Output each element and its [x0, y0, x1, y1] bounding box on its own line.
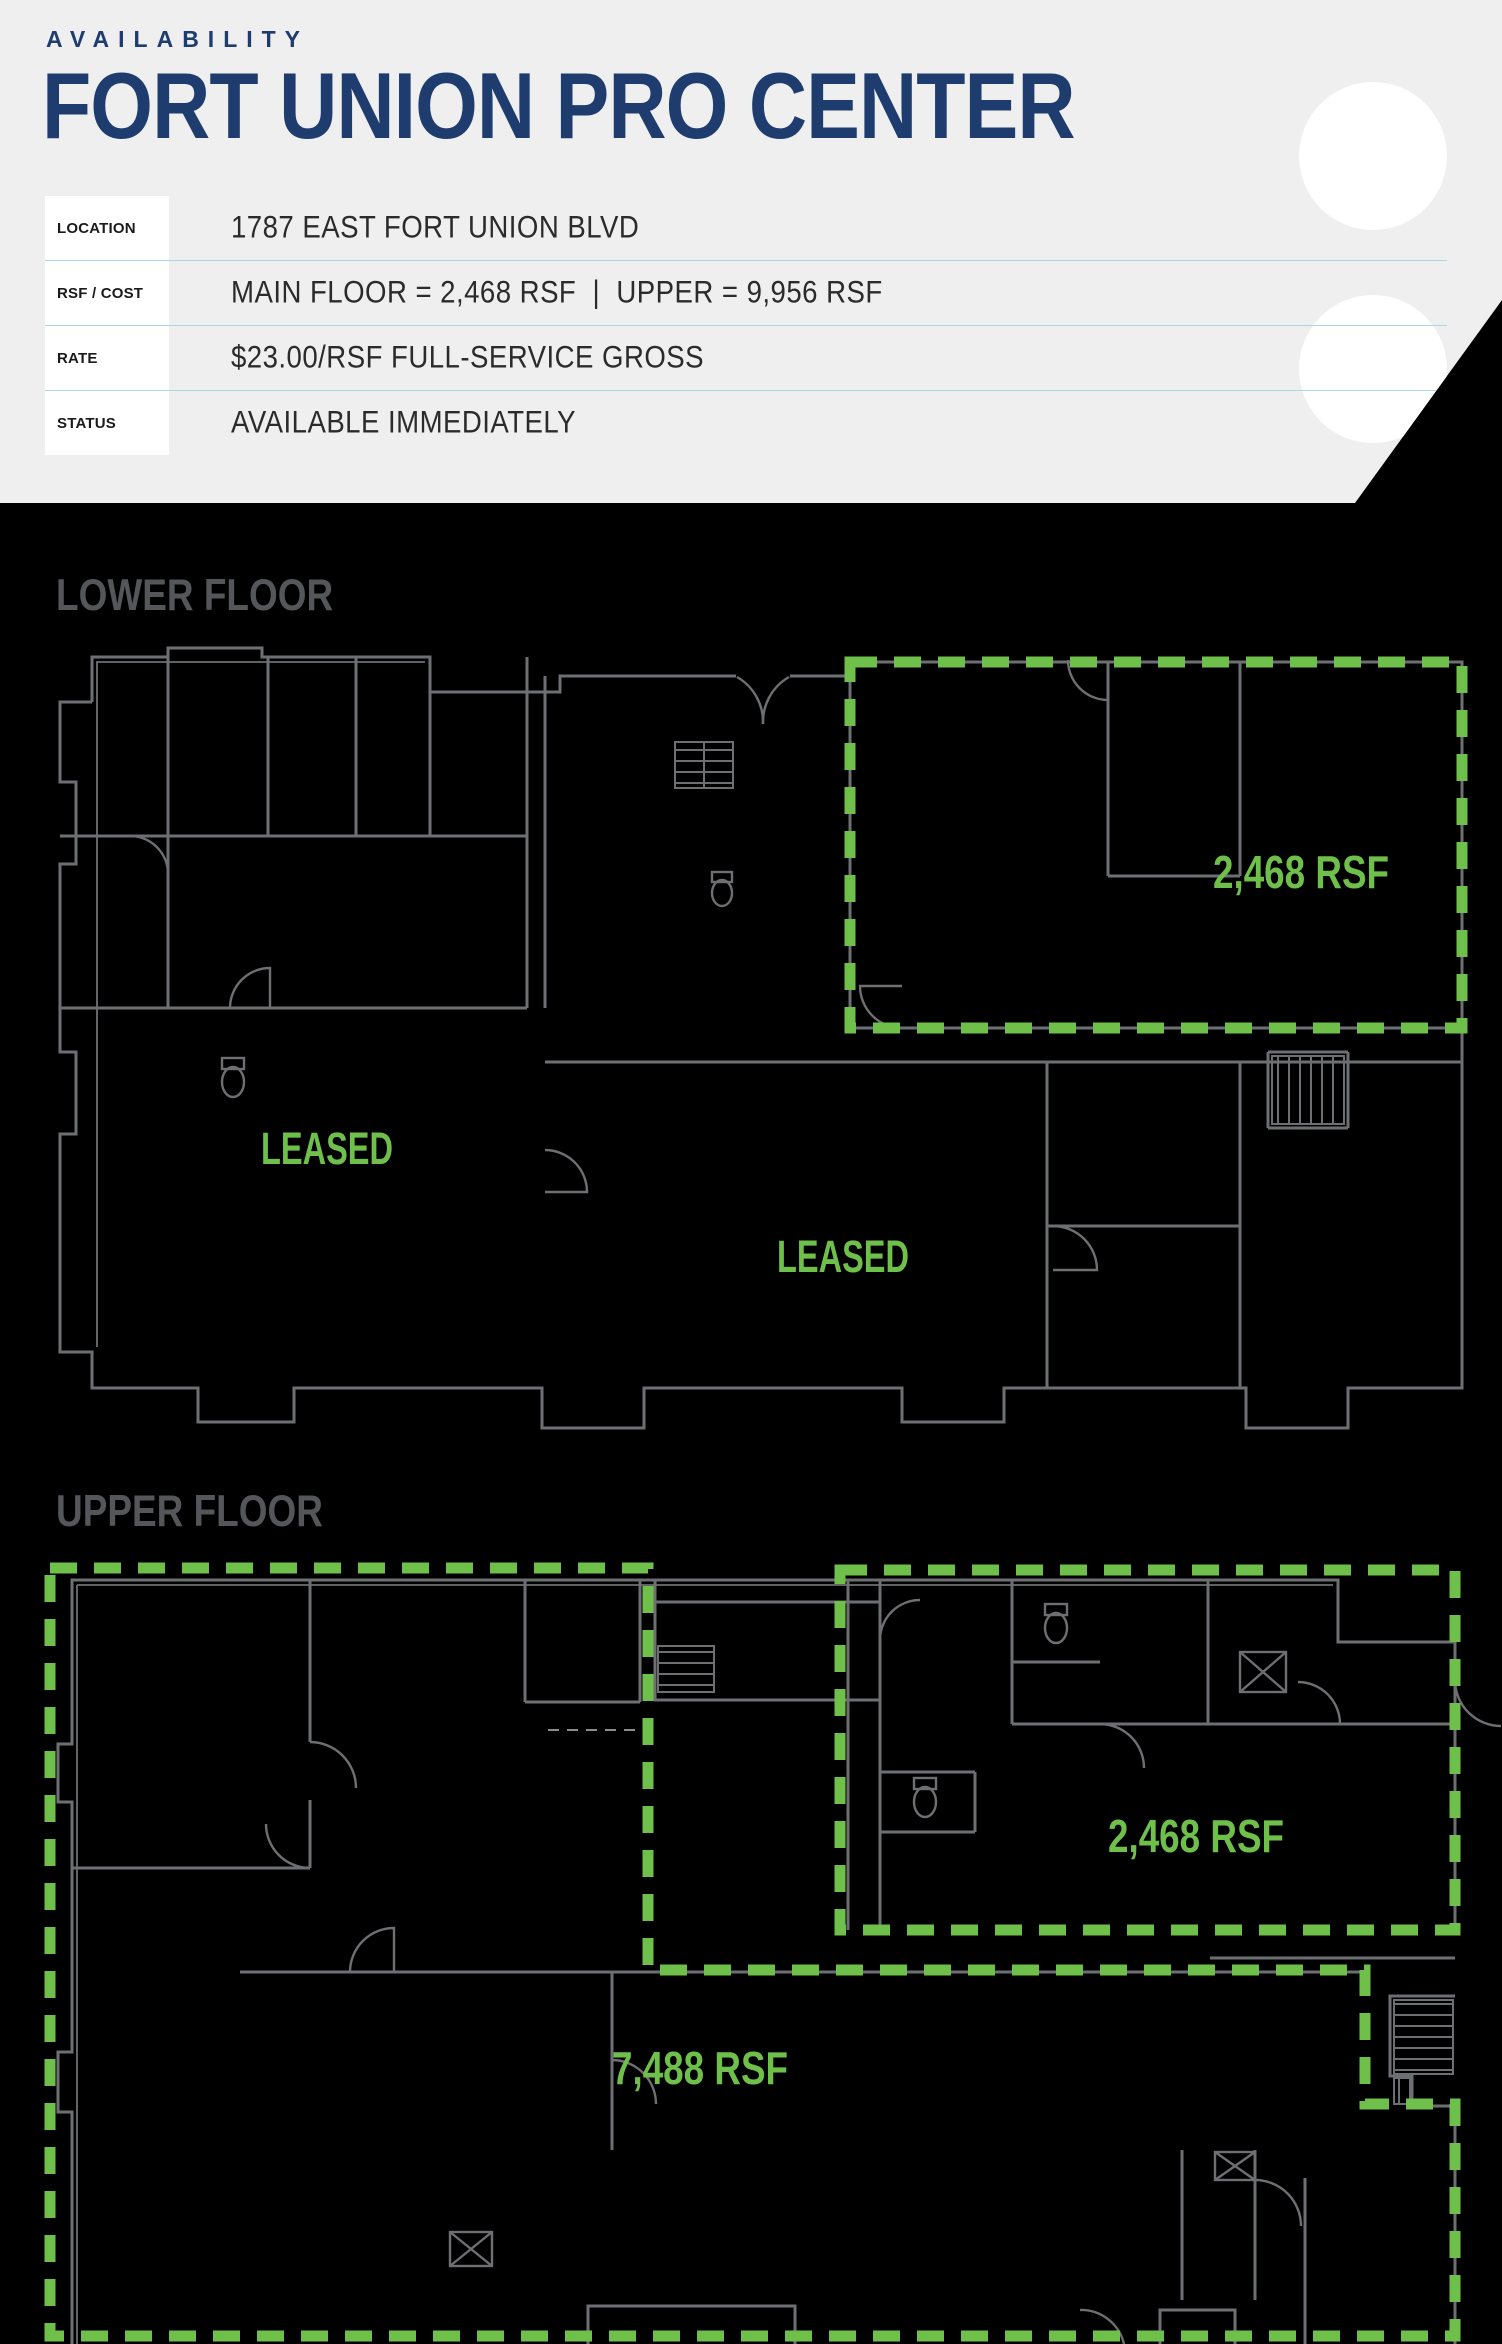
available-suite-outline-lower	[850, 662, 1462, 1028]
suite-size-label: 2,468 RSF	[1108, 1810, 1284, 1862]
elevator-icon	[1240, 1652, 1286, 1692]
upper-floor-heading: UPPER FLOOR	[56, 1486, 323, 1536]
stairs	[675, 742, 1344, 1124]
leased-label: LEASED	[777, 1231, 909, 1282]
suite-size-label: 2,468 RSF	[1213, 846, 1389, 898]
plan-labels: 2,468 RSF 7,488 RSF	[612, 1810, 1284, 2094]
table-row-rate: RATE $23.00/RSF FULL-SERVICE GROSS	[45, 325, 1447, 390]
available-suite-outline-upper-small	[840, 1570, 1455, 1930]
lower-floor-heading: LOWER FLOOR	[56, 570, 333, 620]
walls	[58, 1580, 1455, 2344]
leased-label: LEASED	[261, 1123, 393, 1174]
row-value: 1787 EAST FORT UNION BLVD	[231, 210, 639, 246]
available-suite-outline-upper-large	[50, 1568, 1455, 2336]
row-value: $23.00/RSF FULL-SERVICE GROSS	[231, 340, 704, 376]
row-value: MAIN FLOOR = 2,468 RSF | UPPER = 9,956 R…	[231, 275, 883, 311]
row-label: RSF / COST	[45, 261, 169, 325]
row-label: LOCATION	[45, 196, 169, 260]
plan-labels: 2,468 RSF LEASED LEASED	[261, 846, 1389, 1282]
elevators	[450, 1652, 1286, 2266]
doors-and-fixtures	[130, 660, 1108, 1270]
row-label: STATUS	[45, 391, 169, 455]
flyer-page: AVAILABILITY FORT UNION PRO CENTER LOCAT…	[0, 0, 1502, 2344]
walls	[60, 648, 1462, 1428]
suite-size-label: 7,488 RSF	[612, 2042, 788, 2094]
stairs	[658, 1646, 1453, 2104]
table-row-rsf-cost: RSF / COST MAIN FLOOR = 2,468 RSF | UPPE…	[45, 260, 1447, 325]
eyebrow-availability: AVAILABILITY	[46, 26, 309, 53]
row-value: AVAILABLE IMMEDIATELY	[231, 405, 576, 441]
property-info-table: LOCATION 1787 EAST FORT UNION BLVD RSF /…	[45, 196, 1447, 455]
page-title: FORT UNION PRO CENTER	[42, 52, 1075, 161]
elevator-icon	[450, 2232, 492, 2266]
row-label: RATE	[45, 326, 169, 390]
table-row-status: STATUS AVAILABLE IMMEDIATELY	[45, 390, 1447, 455]
lower-floor-plan: 2,468 RSF LEASED LEASED	[0, 630, 1502, 1445]
upper-floor-plan: 2,468 RSF 7,488 RSF	[0, 1540, 1502, 2344]
header-band: AVAILABILITY FORT UNION PRO CENTER LOCAT…	[0, 0, 1502, 503]
table-row-location: LOCATION 1787 EAST FORT UNION BLVD	[45, 196, 1447, 260]
elevator-icon	[1215, 2152, 1255, 2180]
